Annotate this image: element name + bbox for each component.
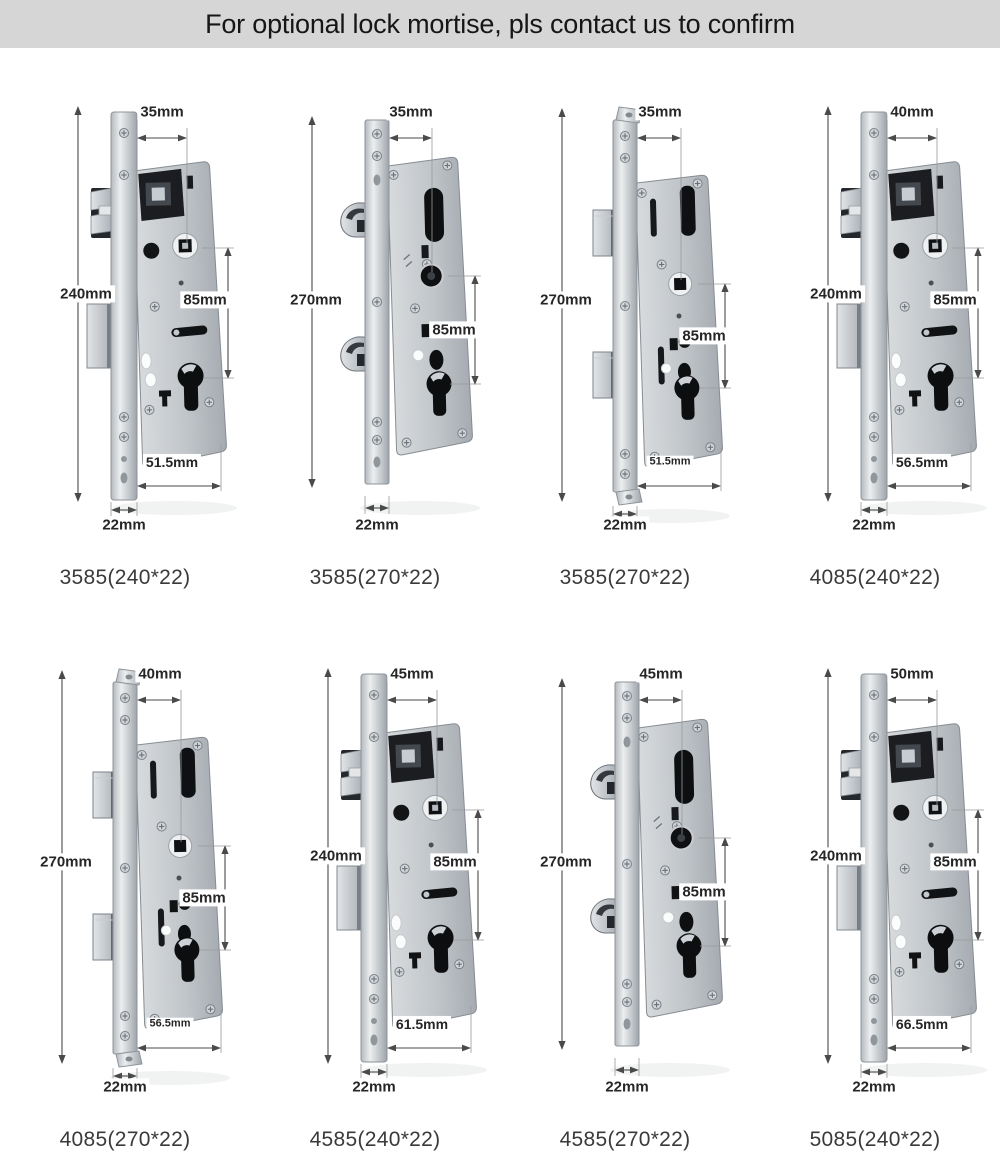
dim-label-center-distance: 85mm xyxy=(179,889,228,906)
model-caption: 4585(270*22) xyxy=(500,1128,750,1152)
header-banner: For optional lock mortise, pls contact u… xyxy=(0,0,1000,48)
dim-label-plate-width: 22mm xyxy=(100,1078,149,1095)
model-caption: 3585(270*22) xyxy=(500,566,750,590)
dim-label-center-distance: 85mm xyxy=(930,291,979,308)
dim-label-edge-distance: 56.5mm xyxy=(893,454,951,470)
dim-label-faceplate-height: 240mm xyxy=(807,847,865,864)
dim-label-center-distance: 85mm xyxy=(930,853,979,870)
model-caption: 4585(240*22) xyxy=(250,1128,500,1152)
dim-label-center-distance: 85mm xyxy=(679,327,728,344)
dim-label-center-distance: 85mm xyxy=(430,853,479,870)
dim-label-backset: 35mm xyxy=(635,103,684,120)
dim-label-backset: 45mm xyxy=(387,665,436,682)
lock-cell-4085-270-tabs: 40mm 270mm 85mm 56.5mm 22mm 4085(270*22) xyxy=(0,610,250,1172)
dim-label-backset: 45mm xyxy=(636,665,685,682)
model-caption: 5085(240*22) xyxy=(750,1128,1000,1152)
lock-cell-4585-270-hook: 45mm 270mm 85mm 22mm 4585(270*22) xyxy=(500,610,750,1172)
dim-label-plate-width: 22mm xyxy=(602,1078,651,1095)
dim-label-plate-width: 22mm xyxy=(600,516,649,533)
model-caption: 4085(270*22) xyxy=(0,1128,250,1152)
lock-cell-4585-240: 45mm 240mm 85mm 61.5mm 22mm 4585(240*22) xyxy=(250,610,500,1172)
dim-label-center-distance: 85mm xyxy=(180,291,229,308)
dim-label-faceplate-height: 270mm xyxy=(37,853,95,870)
dim-label-faceplate-height: 270mm xyxy=(537,853,595,870)
dim-label-faceplate-height: 270mm xyxy=(287,291,345,308)
dim-label-faceplate-height: 240mm xyxy=(307,847,365,864)
dim-label-faceplate-height: 270mm xyxy=(537,291,595,308)
lock-variant-grid: 35mm 240mm 85mm 51.5mm 22mm 3585(240*22)… xyxy=(0,48,1000,1172)
dim-label-edge-distance: 66.5mm xyxy=(893,1016,951,1032)
dim-label-faceplate-height: 240mm xyxy=(57,285,115,302)
lock-cell-3585-270-tabs: 35mm 270mm 85mm 51.5mm 22mm 3585(270*22) xyxy=(500,48,750,610)
dim-label-plate-width: 22mm xyxy=(99,516,148,533)
model-caption: 4085(240*22) xyxy=(750,566,1000,590)
lock-cell-3585-240: 35mm 240mm 85mm 51.5mm 22mm 3585(240*22) xyxy=(0,48,250,610)
page-title: For optional lock mortise, pls contact u… xyxy=(205,9,795,40)
dim-label-center-distance: 85mm xyxy=(429,321,478,338)
dim-label-plate-width: 22mm xyxy=(849,1078,898,1095)
dim-label-edge-distance: 56.5mm xyxy=(147,1018,194,1031)
dim-label-faceplate-height: 240mm xyxy=(807,285,865,302)
dim-label-backset: 35mm xyxy=(137,103,186,120)
dim-label-plate-width: 22mm xyxy=(352,516,401,533)
dim-label-backset: 35mm xyxy=(386,103,435,120)
dim-label-backset: 40mm xyxy=(887,103,936,120)
model-caption: 3585(270*22) xyxy=(250,566,500,590)
model-caption: 3585(240*22) xyxy=(0,566,250,590)
dim-label-edge-distance: 61.5mm xyxy=(393,1016,451,1032)
dim-label-plate-width: 22mm xyxy=(349,1078,398,1095)
dim-label-plate-width: 22mm xyxy=(849,516,898,533)
lock-cell-5085-240: 50mm 240mm 85mm 66.5mm 22mm 5085(240*22) xyxy=(750,610,1000,1172)
dim-label-backset: 50mm xyxy=(887,665,936,682)
lock-cell-3585-270-hook: 35mm 270mm 85mm 22mm 3585(270*22) xyxy=(250,48,500,610)
lock-cell-4085-240: 40mm 240mm 85mm 56.5mm 22mm 4085(240*22) xyxy=(750,48,1000,610)
dim-label-edge-distance: 51.5mm xyxy=(647,456,694,469)
dim-label-edge-distance: 51.5mm xyxy=(143,454,201,470)
dim-label-center-distance: 85mm xyxy=(679,883,728,900)
dim-label-backset: 40mm xyxy=(135,665,184,682)
